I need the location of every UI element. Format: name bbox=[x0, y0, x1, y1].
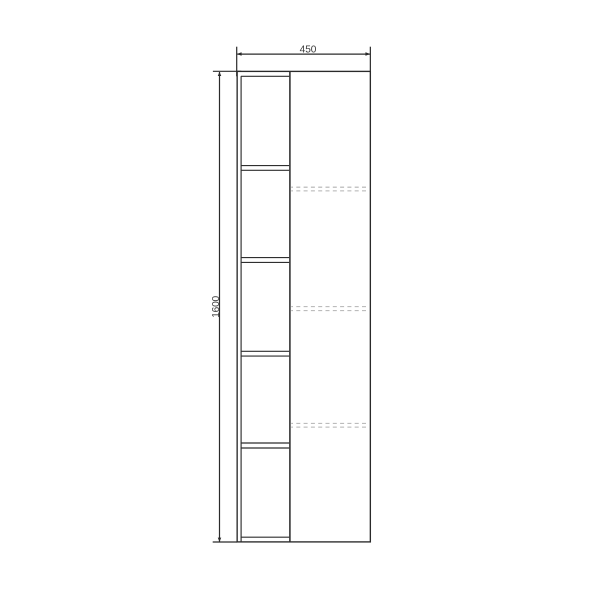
svg-text:1600: 1600 bbox=[211, 295, 222, 317]
svg-text:450: 450 bbox=[300, 44, 317, 55]
